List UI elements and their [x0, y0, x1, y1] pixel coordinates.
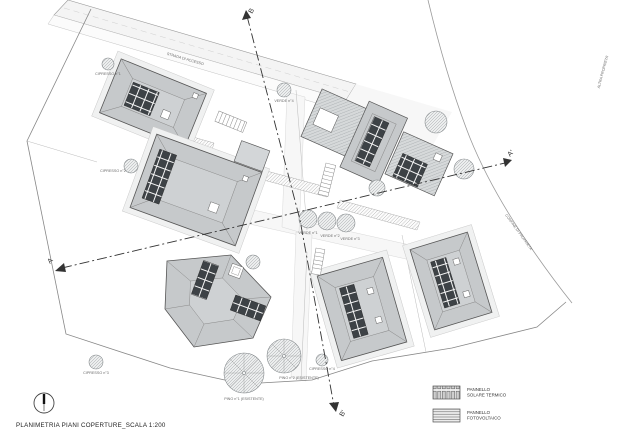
tree [102, 58, 114, 70]
annotation-verde1: VERDE n°1 [298, 231, 317, 235]
section-arrow-b-prime [329, 402, 339, 412]
site-plan-sheet: A A' B B' PINO n°1 (ESISTENTE) PINO n°2 … [0, 0, 640, 430]
annotation-cipresso4: CIPRESSO n°4 [309, 367, 335, 371]
tree [246, 255, 260, 269]
section-label-a-prime: A' [506, 149, 515, 158]
annotation-confine: CONFINE DI PROPRIETA' [504, 213, 533, 251]
legend-item-solar-thermal: PANNELLO SOLARE TERMICO [433, 386, 507, 399]
tree [89, 355, 103, 369]
tree [369, 180, 385, 196]
legend-item-photovoltaic: PANNELLO FOTOVOLTAICO [433, 409, 501, 422]
legend-label: FOTOVOLTAICO [467, 416, 501, 421]
skylight [375, 316, 382, 323]
skylight [367, 287, 374, 294]
annotation-verde4: VERDE n°4 [274, 99, 293, 103]
annotation-verde3: VERDE n°3 [340, 237, 359, 241]
annotation-pino2: PINO n°2 (ESISTENTE) [279, 376, 319, 380]
tree [337, 214, 355, 232]
legend: PANNELLO SOLARE TERMICO PANNELLO FOTOVOL… [433, 386, 507, 422]
photovoltaic-swatch [433, 409, 460, 422]
legend-label: PANNELLO [467, 410, 491, 415]
solar-thermal-swatch [433, 386, 460, 399]
building-4-roof [403, 225, 500, 338]
stairs [215, 111, 247, 132]
annotation-pino1: PINO n°1 (ESISTENTE) [224, 397, 264, 401]
section-arrow-a-prime [503, 158, 512, 167]
tree [316, 354, 328, 366]
annotation-cipresso1: CIPRESSO n°1 [95, 72, 121, 76]
tree [277, 83, 291, 97]
legend-label: PANNELLO [467, 387, 491, 392]
tree [299, 210, 317, 228]
section-label-a: A [46, 257, 54, 265]
title-block: PLANIMETRIA PIANI COPERTURE_SCALA 1:200 [16, 393, 166, 429]
pine-tree-1 [224, 353, 264, 393]
annotation-altra-proprieta: ALTRA PROPRIETA' [597, 54, 610, 88]
pine-tree-2 [267, 339, 301, 373]
site-plan-drawing: A A' B B' PINO n°1 (ESISTENTE) PINO n°2 … [0, 0, 640, 430]
tree [318, 212, 336, 230]
tree [124, 159, 138, 173]
section-arrow-a [55, 263, 66, 272]
drawing-title: PLANIMETRIA PIANI COPERTURE_SCALA 1:200 [16, 422, 166, 429]
tree [425, 111, 447, 133]
tree [454, 159, 474, 179]
annotation-cipresso2: CIPRESSO n°2 [100, 169, 126, 173]
legend-label: SOLARE TERMICO [467, 393, 507, 398]
building-6-roof [310, 250, 414, 368]
stairs [318, 163, 335, 196]
north-arrow [34, 393, 54, 413]
section-label-b: B [248, 7, 257, 15]
annotation-cipresso3: CIPRESSO n°3 [83, 371, 109, 375]
section-label-b-prime: B' [339, 409, 348, 418]
annotation-verde2: VERDE n°2 [320, 234, 339, 238]
top-road [54, 0, 356, 100]
